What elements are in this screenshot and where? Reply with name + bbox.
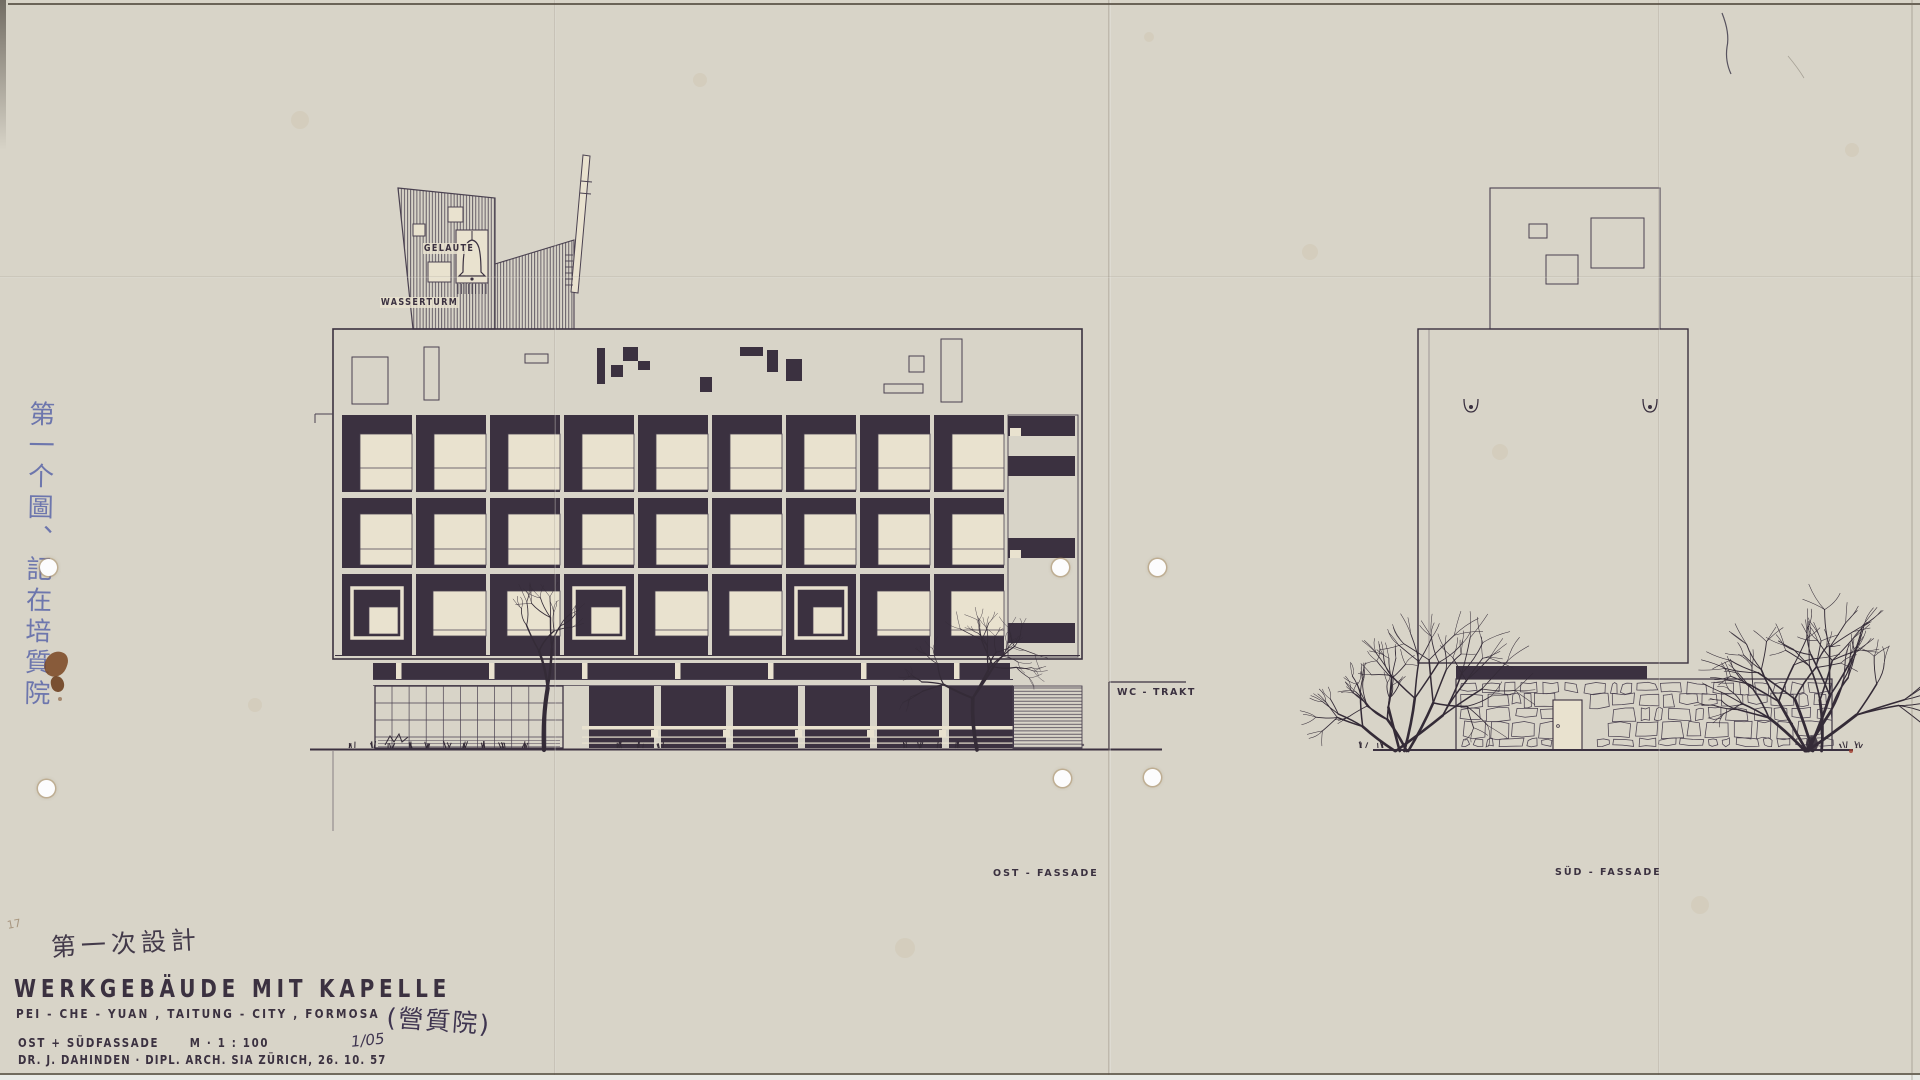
architect-line: DR. J. DAHINDEN · DIPL. ARCH. SIA ZÜRICH… [18,1053,386,1067]
scale-text: M · 1 : 100 [190,1036,269,1050]
pen-marks [248,13,1859,958]
facade-and-scale-line: OST + SÜDFASSADEM · 1 : 100 [18,1036,269,1050]
stone-wall [1456,679,1832,750]
sheet-number: 1/05 [350,1029,385,1050]
south-facade [1373,188,1853,751]
ground-line-east [310,749,1162,751]
handwritten-sheet-number: 17 [6,917,22,932]
drawing-title: WERKGEBÄUDE MIT KAPELLE [14,974,451,1003]
south-tower [1418,329,1688,663]
punch-hole [1144,769,1161,786]
east-ground-floor [310,663,1162,831]
facade-line-text: OST + SÜDFASSADE [18,1036,159,1050]
ground-line-south [1373,749,1853,751]
mast [571,155,590,293]
punch-hole [38,780,55,797]
elevation-drawing [0,0,1920,1080]
punch-hole [1052,559,1069,576]
east-facade [315,329,1082,659]
punch-hole [40,559,57,576]
drawing-subtitle: PEI - CHE - YUAN , TAITUNG - CITY , FORM… [16,1006,380,1021]
punch-hole [1054,770,1071,787]
blueprint-sheet: GELÄUTE WASSERTURM WC - TRAKT OST - FASS… [0,0,1920,1080]
handwritten-note-after-subtitle: (營質院) [385,998,492,1041]
rooftop-box [1490,188,1660,329]
label-sued-fassade: SÜD - FASSADE [1554,867,1663,878]
label-gelaeute: GELÄUTE [423,243,475,254]
label-ost-fassade: OST - FASSADE [992,868,1100,879]
label-wc-trakt: WC - TRAKT [1116,687,1197,698]
ink-stain [58,697,62,701]
punch-hole [1149,559,1166,576]
label-wasserturm: WASSERTURM [380,297,459,308]
